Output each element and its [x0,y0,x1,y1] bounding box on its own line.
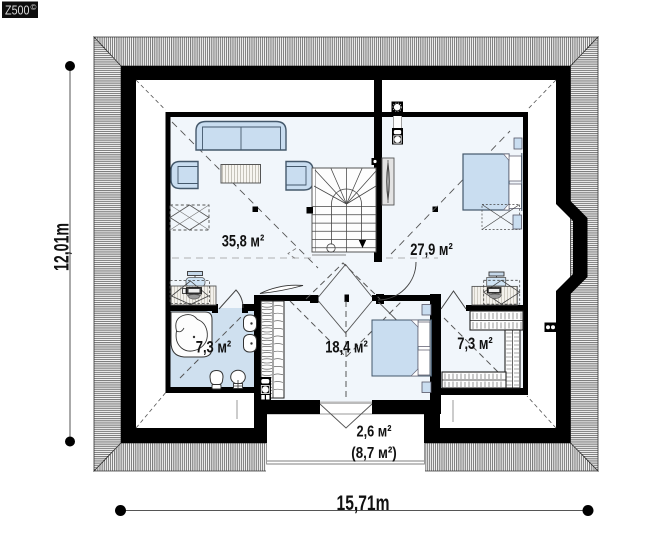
svg-text:2,6 м²: 2,6 м² [357,424,392,441]
svg-text:7,3 м²: 7,3 м² [457,334,493,353]
svg-text:Z500: Z500 [5,4,30,18]
svg-text:7,3 м²: 7,3 м² [196,338,232,357]
svg-text:15,71m: 15,71m [337,492,390,515]
svg-text:12,01m: 12,01m [51,223,74,271]
svg-text:18,4 м²: 18,4 м² [325,338,368,357]
svg-text:27,9 м²: 27,9 м² [410,240,453,259]
svg-text:©: © [31,3,37,12]
svg-text:35,8 м²: 35,8 м² [222,232,265,251]
svg-text:(8,7 м²): (8,7 м²) [351,445,397,462]
